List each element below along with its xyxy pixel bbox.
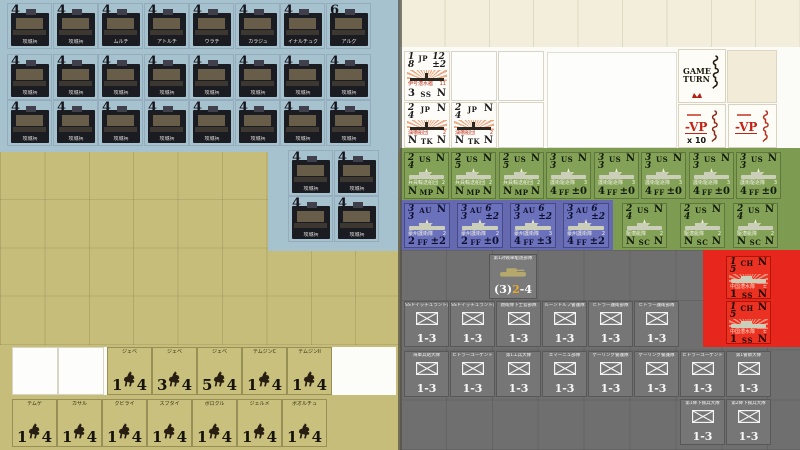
star-ship-icon: ★ [513,221,553,231]
unit-name: ヒトラー護衛部隊 [635,303,678,309]
siege-counter[interactable]: 4攻城兵 [235,100,280,146]
unit-name: 攻城兵 [11,39,49,45]
star-ship-icon: ★ [644,170,683,180]
unit-name: 攻城兵 [239,90,277,96]
leader-name: ジェベ [198,349,241,355]
infantry-counter[interactable]: 海軍兵站大隊1-3 [404,351,449,397]
blank-counter [498,51,544,101]
infantry-counter[interactable]: エマーニュ部隊1-3 [542,351,587,397]
movement-value: 4 [272,376,282,394]
strength-values: 15 [730,258,736,274]
unit-name: 攻城兵 [102,90,140,96]
cavalry-counter[interactable]: テムジンII14 [287,347,332,395]
infantry-symbol-icon [600,312,622,325]
infantry-symbol-icon [738,362,760,375]
siege-engine-icon: ウラチ [193,13,231,46]
rising-sun-ship-icon [454,120,494,130]
tank-stats: (3)2-4 [490,283,536,296]
unit-name: 第1降下猟兵大隊 [681,401,724,407]
star-ship-icon: ★ [739,170,778,180]
horseman-icon [162,423,178,443]
infantry-counter[interactable]: 第1工兵大隊1-3 [496,351,541,397]
rising-sun-ship-icon [407,70,447,81]
cavalry-counter[interactable]: ボオルチュ14 [282,399,327,447]
unit-name: エマーニュ部隊 [543,353,586,359]
unit-name: ムルチ [102,39,140,45]
nationality-label: JP [418,54,428,70]
attack-value: 1 [247,376,257,394]
rising-sun-ship-icon [407,120,447,130]
unit-name: 海軍兵站大隊 [405,353,448,359]
infantry-counter[interactable]: ヒトラーユーゲント1-3 [680,351,725,397]
infantry-symbol-icon [462,362,484,375]
attack-value: 1 [242,428,252,446]
unit-name: 攻城兵 [11,136,49,142]
counter-bottom-row: 1SSN [727,335,770,346]
siege-counter[interactable]: 4攻城兵 [235,54,280,100]
us-naval-counter[interactable]: 33USN★護衛駆逐隊34FF±0 [546,152,591,199]
siege-engine-icon: ムルチ [102,13,140,46]
combat-movement-value: 1-3 [405,382,448,395]
jp-naval-counter[interactable]: 24JPN油槽船団2NTKN [451,102,497,148]
unit-name: カラジュ [239,39,277,45]
siege-counter[interactable]: 4攻城兵 [53,3,98,49]
counter-bottom-row: NSCN [734,237,777,248]
horseman-icon [27,423,43,443]
siege-counter[interactable]: 4イナルチュク [280,3,325,49]
siege-counter[interactable]: 4ムルチ [98,3,143,49]
unit-name: 攻城兵 [148,90,186,96]
combat-movement-value: 1-3 [405,332,448,345]
leader-name: ボロクル [193,401,236,407]
movement-value: 4 [227,376,237,394]
counter-top-row: 24JPN [405,103,449,120]
ch-naval-counter[interactable]: 15CHN中国潜水隊±1SSN [726,256,771,299]
unit-name: 攻城兵 [11,90,49,96]
top-right-values: N [484,104,493,120]
leader-name: カサル [58,401,101,407]
unit-name: 攻城兵 [292,186,330,192]
siege-counter[interactable]: 4攻城兵 [189,100,234,146]
horseman-icon [207,423,223,443]
star-ship-icon: ★ [597,170,636,180]
siege-counter[interactable]: 4攻城兵 [334,196,379,242]
siege-counter[interactable]: 4アトルチ [144,3,189,49]
vp-marker[interactable]: -VP [728,104,777,148]
infantry-counter[interactable]: 親衛隊下士官部隊1-3 [496,301,541,347]
horseman-icon [297,423,313,443]
unit-name: 攻城兵 [102,136,140,142]
movement-value: 4 [182,376,192,394]
counter-bottom-row: 4FF±0 [690,186,733,198]
countersheet: 第1対戦車駆逐部隊 (3)2-4 GAME TURN -VP x 10 -VP [0,0,800,450]
us-naval-counter[interactable]: 25USN★兵員輸送船団2NMPN [451,152,496,199]
siege-engine-icon: カラジュ [239,13,277,46]
unit-name: 攻城兵 [338,232,376,238]
horseman-icon [252,423,268,443]
siege-counter[interactable]: 4攻城兵 [98,54,143,100]
us-naval-counter[interactable]: 33USN★護衛駆逐隊34FF±0 [736,152,781,199]
horseman-icon [117,423,133,443]
leader-name: ボオルチュ [283,401,326,407]
attack-value: 1 [112,376,122,394]
strength-values: 24 [408,104,414,120]
unit-name: 攻城兵 [148,136,186,142]
cavalry-counter[interactable]: ジェベ34 [152,347,197,395]
star-ship-icon: ★ [625,221,664,231]
siege-counter[interactable]: 6アルグ [326,3,371,49]
cavalry-counter[interactable]: テムジンC14 [242,347,287,395]
unit-name: ヒトラーユーゲント [681,353,724,359]
mongol-script-icon [710,55,721,91]
siege-counter[interactable]: 4攻城兵 [280,54,325,100]
strength-values: 18 [408,53,414,70]
unit-name: ヒトラーユーゲント [451,353,494,359]
siege-engine-icon: 攻城兵 [338,206,376,239]
combat-movement-value: 1-3 [635,332,678,345]
star-ship-icon: ★ [454,170,493,180]
counter-bottom-row: 2FF±0 [458,237,502,248]
movement-value: 4 [177,428,187,446]
infantry-symbol-icon [554,312,576,325]
infantry-counter[interactable]: 第2降下猟兵大隊1-3 [726,399,771,445]
attack-value: 1 [17,428,27,446]
tank-stat-move: -4 [520,283,532,296]
cavalry-counter[interactable]: ジェルメ14 [237,399,282,447]
siege-counter[interactable]: 4攻城兵 [7,3,52,49]
counter-top-row: 15CHN [727,257,770,274]
blank-counter [547,52,677,148]
infantry-symbol-icon [508,312,530,325]
counter-bottom-row: NMPN [452,186,495,198]
us-naval-counter[interactable]: 24USN★兵員輸送船団2NMPN [404,152,449,199]
siege-engine-icon: アトルチ [148,13,186,46]
leader-name: ジェベ [108,349,151,355]
star-ship-icon: ★ [407,170,446,180]
combat-movement-value: 1-3 [497,332,540,345]
siege-engine-icon: 攻城兵 [292,206,330,239]
cavalry-counter[interactable]: ジェベ14 [107,347,152,395]
siege-engine-icon: 攻城兵 [102,64,140,97]
infantry-symbol-icon [416,312,438,325]
counter-top-row: 18JP12±2 [405,52,449,70]
attack-value: 5 [202,376,212,394]
jp-naval-counter[interactable]: 24JPN油槽船団2NTKN [404,102,450,148]
leader-name: ジェルメ [238,401,281,407]
infantry-symbol-icon [738,410,760,423]
siege-counter[interactable]: 4攻城兵 [7,100,52,146]
blank-counter [12,347,58,395]
attack-value: 3 [157,376,167,394]
siege-engine-icon: 攻城兵 [284,64,322,97]
siege-engine-icon: 攻城兵 [102,110,140,143]
counter-bottom-row: 1SSN [727,290,770,301]
combat-movement-value: 1-3 [589,382,632,395]
siege-counter[interactable]: 4攻城兵 [144,100,189,146]
red-tick-icon [737,114,751,116]
siege-counter[interactable]: 4攻城兵 [334,150,379,196]
siege-engine-icon: 攻城兵 [292,160,330,193]
infantry-symbol-icon [462,312,484,325]
siege-counter[interactable]: 4ウラチ [189,3,234,49]
leader-name: テムジンII [288,349,331,355]
unit-name: ゲーリング警護隊 [589,353,632,359]
siege-counter[interactable]: 4攻城兵 [98,100,143,146]
infantry-counter[interactable]: 第1降下猟兵大隊1-3 [680,399,725,445]
unit-name: ウラチ [193,39,231,45]
combat-movement-value: 1-3 [543,382,586,395]
counter-bottom-row: NMPN [500,186,543,198]
siege-counter[interactable]: 4攻城兵 [326,54,371,100]
au-naval-counter[interactable]: 33AU6±2★豪州護衛隊22FF±0 [457,203,503,248]
unit-name: 親衛隊下士官部隊 [497,303,540,309]
us-naval-counter[interactable]: 25USN★兵員輸送船団2NMPN [499,152,544,199]
infantry-symbol-icon [554,362,576,375]
zone-cream-blank-strip [400,0,800,47]
vp-x10-marker[interactable]: -VP x 10 [678,104,726,148]
red-tick-icon [687,114,701,116]
jp-naval-counter[interactable]: 18JP12±2伊号潜水艦113SSN [404,51,450,101]
vp-multiplier: x 10 [687,136,706,145]
sun-ship-icon [729,274,768,284]
attack-value: 1 [287,428,297,446]
unit-name: 攻城兵 [284,136,322,142]
movement-value: 4 [42,428,52,446]
tank-counter[interactable]: 第1対戦車駆逐部隊 (3)2-4 [489,254,537,299]
attack-value: 1 [292,376,302,394]
horseman-icon [212,371,228,391]
siege-engine-icon: 攻城兵 [330,64,368,97]
vp-label: -VP [735,121,757,134]
leader-name: テムジンC [243,349,286,355]
counter-bottom-row: 4FF±0 [642,186,685,198]
unit-name: ヒトラー護衛部隊 [589,303,632,309]
infantry-counter[interactable]: ヒトラー護衛部隊1-3 [634,301,679,347]
au-naval-counter[interactable]: 33AU6±2★豪州護衛隊34FF±3 [510,203,556,248]
combat-movement-value: 1-3 [727,430,770,443]
unit-name: 第2降下猟兵大隊 [727,401,770,407]
unit-name: SSドイッチュラント連隊 [405,303,448,309]
horseman-icon [72,423,88,443]
mongol-script-icon [760,110,771,144]
unit-name: 攻城兵 [57,39,95,45]
tank-icon [498,265,528,278]
combat-movement-value: 1-3 [681,430,724,443]
blank-counter [727,50,777,103]
cavalry-counter[interactable]: ボロクル14 [192,399,237,447]
us-naval-counter[interactable]: 33USN★護衛駆逐隊34FF±0 [689,152,734,199]
us-naval-counter[interactable]: 24USN★駆潜艇隊2NSCN [680,203,725,248]
star-ship-icon: ★ [736,221,775,231]
movement-value: 4 [132,428,142,446]
siege-engine-icon: アルグ [330,13,368,46]
sheet-divider [398,0,402,450]
strength-values: 15 [730,303,736,319]
movement-value: 4 [87,428,97,446]
siege-counter[interactable]: 4攻城兵 [280,100,325,146]
siege-engine-icon: 攻城兵 [11,64,49,97]
nationality-label: CH [740,259,753,274]
leader-name: テムゲ [13,401,56,407]
siege-counter[interactable]: 4攻城兵 [53,100,98,146]
top-right-values: 12±2 [432,53,446,70]
game-turn-marker[interactable]: GAME TURN [678,49,726,103]
unit-name: SSドイッチュラント連隊 [451,303,494,309]
counter-bottom-row: NMPN [405,186,448,198]
movement-value: 4 [267,428,277,446]
infantry-symbol-icon [646,362,668,375]
siege-engine-icon: 攻城兵 [284,110,322,143]
combat-movement-value: 1-3 [451,382,494,395]
unit-name: ルーンドルフ警護隊 [543,303,586,309]
blank-counter [451,51,497,101]
counter-bottom-row: NTKN [405,136,449,147]
siege-engine-icon: 攻城兵 [239,110,277,143]
nationality-label: JP [421,105,431,120]
siege-counter[interactable]: 4カラジュ [235,3,280,49]
counter-bottom-row: 4FF±3 [511,237,555,248]
au-naval-counter[interactable]: 33AU6±2★豪州護衛隊24FF±2 [563,203,609,248]
siege-counter[interactable]: 4攻城兵 [326,100,371,146]
counter-top-row: 15CHN [727,302,770,319]
infantry-symbol-icon [416,362,438,375]
unit-name: イナルチュク [284,39,322,45]
us-naval-counter[interactable]: 33USN★護衛駆逐隊34FF±0 [594,152,639,199]
tank-stat-attack: 2 [512,283,520,296]
tank-unit-name: 第1対戦車駆逐部隊 [490,256,536,262]
counter-top-row: 24JPN [452,103,496,120]
movement-value: 4 [137,376,147,394]
siege-engine-icon: 攻城兵 [57,64,95,97]
horseman-icon [122,371,138,391]
siege-engine-icon: 攻城兵 [11,110,49,143]
unit-name: 攻城兵 [57,136,95,142]
unit-name: 攻城兵 [284,90,322,96]
us-naval-counter[interactable]: 24USN★駆潜艇隊2NSCN [622,203,667,248]
infantry-counter[interactable]: ゲーリング警護隊1-3 [588,351,633,397]
infantry-counter[interactable]: ゲーリング警護隊1-3 [634,351,679,397]
siege-engine-icon: 攻城兵 [57,110,95,143]
siege-counter[interactable]: 4攻城兵 [288,150,333,196]
unit-name: ゲーリング警護隊 [635,353,678,359]
red-seal-icon [691,92,703,98]
star-ship-icon: ★ [549,170,588,180]
siege-counter[interactable]: 4攻城兵 [189,54,234,100]
siege-engine-icon: 攻城兵 [11,13,49,46]
unit-name: 第1警察大隊 [727,353,770,359]
unit-name: 攻城兵 [193,136,231,142]
combat-movement-value: 1-3 [727,382,770,395]
combat-movement-value: 1-3 [589,332,632,345]
attack-value: 1 [62,428,72,446]
attack-value: 1 [197,428,207,446]
cavalry-counter[interactable]: ジェベ54 [197,347,242,395]
game-turn-label: GAME TURN [683,67,711,83]
counter-bottom-row: 4FF±0 [547,186,590,198]
counter-bottom-row: NSCN [623,237,666,248]
star-ship-icon: ★ [502,170,541,180]
us-naval-counter[interactable]: 33USN★護衛駆逐隊34FF±0 [641,152,686,199]
unit-name: 攻城兵 [239,136,277,142]
cavalry-counter[interactable]: カサル14 [57,399,102,447]
star-ship-icon: ★ [407,221,447,231]
tank-stat-steps: (3) [494,283,512,296]
siege-engine-icon: 攻城兵 [57,13,95,46]
infantry-symbol-icon [692,410,714,423]
movement-value: 4 [222,428,232,446]
siege-engine-icon: 攻城兵 [239,64,277,97]
horseman-icon [167,371,183,391]
unit-name: 攻城兵 [292,232,330,238]
blank-counter [58,347,104,395]
star-ship-icon: ★ [692,170,731,180]
infantry-counter[interactable]: ルーンドルフ警護隊1-3 [542,301,587,347]
counter-bottom-row: NSCN [681,237,724,248]
strength-values: 24 [455,104,461,120]
counter-bottom-row: 4FF±0 [595,186,638,198]
siege-engine-icon: 攻城兵 [148,110,186,143]
leader-name: スブタイ [148,401,191,407]
infantry-symbol-icon [646,312,668,325]
siege-engine-icon: 攻城兵 [338,160,376,193]
cavalry-counter[interactable]: スブタイ14 [147,399,192,447]
combat-movement-value: 1-3 [451,332,494,345]
infantry-counter[interactable]: SSドイッチュラント連隊1-3 [450,301,495,347]
infantry-counter[interactable]: ヒトラーユーゲント1-3 [450,351,495,397]
horseman-icon [257,371,273,391]
top-right-values: N [758,303,767,319]
siege-counter[interactable]: 4攻城兵 [288,196,333,242]
siege-counter[interactable]: 4攻城兵 [144,54,189,100]
cavalry-counter[interactable]: テムゲ14 [12,399,57,447]
unit-name: 攻城兵 [330,136,368,142]
ch-naval-counter[interactable]: 15CHN中国潜水隊±1SSN [726,301,771,344]
cavalry-counter[interactable]: クビライ14 [102,399,147,447]
counter-bottom-row: 4FF±2 [564,237,608,248]
blank-counter [498,102,544,148]
unit-name: アトルチ [148,39,186,45]
attack-value: 1 [152,428,162,446]
us-naval-counter[interactable]: 24USN★駆潜艇隊2NSCN [733,203,778,248]
combat-movement-value: 1-3 [681,382,724,395]
horseman-icon [302,371,318,391]
unit-name: アルグ [330,39,368,45]
infantry-counter[interactable]: ヒトラー護衛部隊1-3 [588,301,633,347]
vp-label: -VP [685,121,707,134]
unit-name: 攻城兵 [330,90,368,96]
attack-value: 1 [107,428,117,446]
infantry-counter[interactable]: SSドイッチュラント連隊1-3 [404,301,449,347]
siege-engine-icon: イナルチュク [284,13,322,46]
au-naval-counter[interactable]: 33AUN★豪州護衛隊22FF±2 [404,203,450,248]
siege-counter[interactable]: 4攻城兵 [7,54,52,100]
leader-name: クビライ [103,401,146,407]
combat-movement-value: 1-3 [543,332,586,345]
siege-engine-icon: 攻城兵 [330,110,368,143]
counter-bottom-row: 2FF±2 [405,237,449,248]
infantry-counter[interactable]: 第1警察大隊1-3 [726,351,771,397]
nationality-label: JP [468,105,478,120]
infantry-symbol-icon [600,362,622,375]
top-right-values: N [437,104,446,120]
counter-bottom-row: NTKN [452,136,496,147]
top-right-values: N [758,258,767,274]
unit-name: 攻城兵 [57,90,95,96]
siege-counter[interactable]: 4攻城兵 [53,54,98,100]
leader-name: ジェベ [153,349,196,355]
siege-engine-icon: 攻城兵 [148,64,186,97]
star-ship-icon: ★ [460,221,500,231]
